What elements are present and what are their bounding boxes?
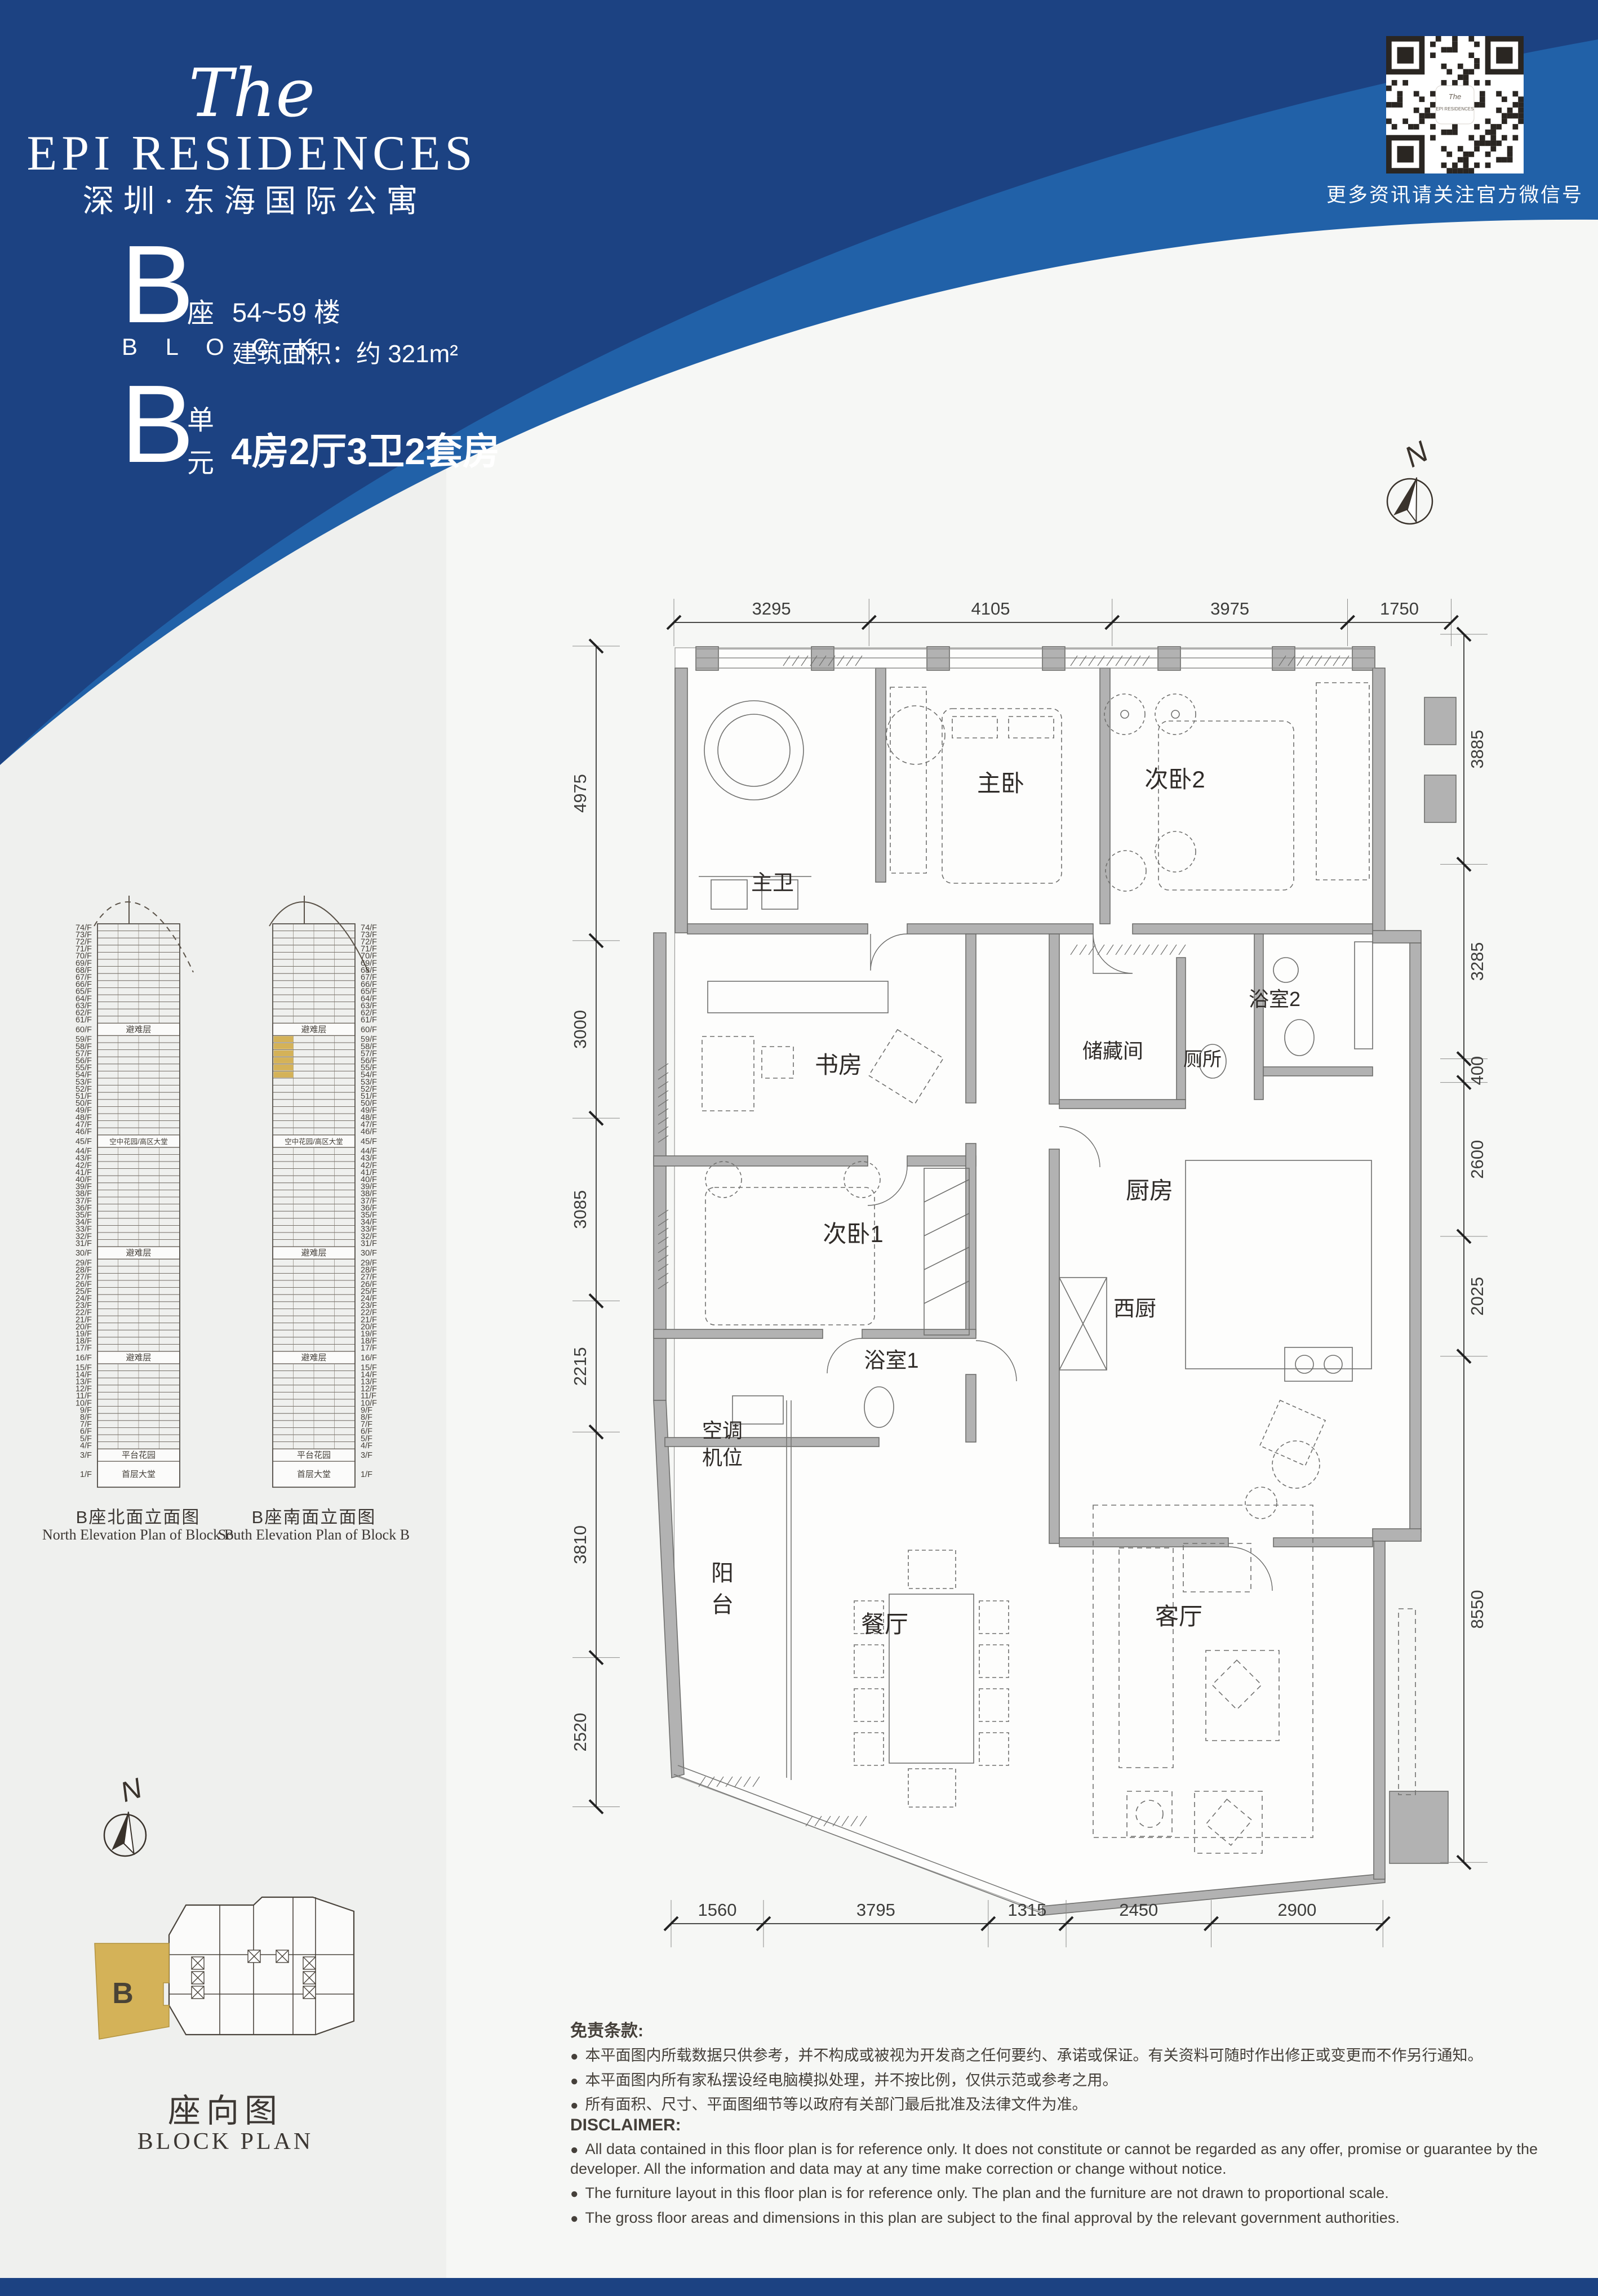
dim-label: 400 [1467,1056,1487,1085]
unit-zh-bottom: 元 [187,440,214,480]
floor-label: 60/F [76,1025,92,1034]
room-ac-1: 空调 [702,1419,743,1442]
block-plan: B [68,1876,383,2062]
dim-chain-left: 497530003085221538102520 [570,639,620,1813]
dim-label: 3795 [856,1900,895,1920]
floor-label: 4/F [80,1441,92,1450]
logo-subtitle: 深圳·东海国际公寓 [83,176,427,221]
disclaimer-en-item: ●All data contained in this floor plan i… [570,2139,1590,2178]
disclaimer-zh-title: 免责条款: [570,2017,1590,2041]
floor-label: 45/F [76,1137,92,1146]
room-toilet: 厕所 [1183,1049,1222,1070]
elevation-band-label: 平台花园 [122,1450,156,1460]
floor-label: 45/F [361,1137,377,1146]
highlight-unit-floor [274,1071,294,1078]
unit-description: 4房2厅3卫2套房 [231,421,500,475]
floor-label: 1/F [80,1470,92,1479]
disclaimer-zh-item: ●所有面积、尺寸、平面图细节等以政府有关部门最后批准及法律文件为准。 [570,2095,1590,2115]
roof-arc [94,902,193,972]
compass-blockplan-icon: N [85,1774,192,1876]
disclaimer-en-title: DISCLAIMER: [570,2116,1590,2135]
dim-label: 2900 [1277,1900,1316,1920]
dim-label: 1315 [1007,1900,1046,1920]
floor-label: 30/F [76,1249,92,1258]
floor-label: 3/F [80,1451,92,1460]
highlight-unit-floor [274,1036,294,1042]
elevation-band-label: 避难层 [301,1353,326,1363]
room-master-bed: 主卧 [977,770,1024,797]
highlight-unit-floor [274,1057,294,1064]
block-letter-zh: 座 [187,291,214,330]
floor-label: 30/F [361,1249,377,1258]
floor-label: 1/F [361,1470,372,1479]
room-master-bath: 主卫 [751,871,794,895]
dim-label: 3295 [752,599,791,619]
disclaimer-en-item: ●The furniture layout in this floor plan… [570,2183,1590,2203]
floor-label: 46/F [361,1128,377,1137]
floor-label: 17/F [76,1344,92,1353]
logo-title: EPI RESIDENCES [27,125,477,182]
elevation-band-label: 避难层 [301,1025,326,1034]
elevation-band-label: 首层大堂 [122,1470,156,1479]
logo-script: The [189,54,316,132]
room-storage: 储藏间 [1082,1039,1143,1062]
room-balcony-2: 台 [711,1592,734,1617]
floor-label: 61/F [361,1016,377,1025]
room-balcony-1: 阳 [711,1561,734,1586]
room-kitchen: 厨房 [1126,1177,1173,1204]
unit-letter: B [121,382,194,466]
dim-label: 1750 [1380,599,1419,619]
dim-label: 3000 [570,1010,590,1049]
block-floors: 54~59 楼 [232,291,340,330]
blockplan-subtitle: BLOCK PLAN [137,2128,314,2155]
floor-label: 3/F [361,1451,372,1460]
elevation-band-label: 避难层 [126,1353,151,1363]
room-study: 书房 [815,1052,862,1078]
dim-label: 2450 [1119,1900,1158,1920]
room-bed1: 次卧1 [823,1221,883,1247]
floor-label: 17/F [361,1344,377,1353]
disclaimer-zh-item: ●本平面图内所有家私摆设经电脑模拟处理，并不按比例，仅供示范或参考之用。 [570,2071,1590,2090]
north-elevation-subtitle: North Elevation Plan of Block B [42,1527,234,1543]
block-letter: B [121,242,194,327]
highlight-unit-floor [274,1043,294,1049]
south-elevation-title: B座南面立面图 [252,1503,376,1528]
south-elevation-subtitle: South Elevation Plan of Block B [218,1527,410,1543]
room-west-kitchen: 西厨 [1113,1297,1156,1321]
elevation-band-label: 空中花园/高区大堂 [109,1137,167,1146]
dim-label: 3975 [1210,599,1249,619]
plan-envelope [674,648,1421,1912]
dim-label: 3810 [570,1525,590,1564]
floor-label: 31/F [361,1239,377,1248]
dim-chain-top: 3295410539751750 [667,599,1458,646]
floor-label: 16/F [361,1354,377,1363]
disclaimer-zh-item: ●本平面图内所载数据只供参考，并不构成或被视为开发商之任何要约、承诺或保证。有关… [570,2046,1590,2066]
dim-label: 3085 [570,1190,590,1229]
dim-label: 2600 [1467,1140,1487,1179]
south-elevation: 74/F73/F72/F71/F70/F69/F68/F67/F66/F65/F… [269,896,377,1487]
disclaimer-en-item: ●The gross floor areas and dimensions in… [570,2208,1590,2228]
dim-label: 2520 [570,1713,590,1752]
dim-label: 4975 [570,774,590,813]
elevation-band-label: 首层大堂 [297,1470,331,1479]
room-living: 客厅 [1155,1603,1202,1630]
dim-label: 2025 [1467,1277,1487,1316]
room-ac-2: 机位 [702,1446,743,1469]
room-dining: 餐厅 [861,1611,908,1638]
dim-label: 2215 [570,1347,590,1386]
elevation-band-label: 空中花园/高区大堂 [285,1137,343,1146]
disclaimer-en: DISCLAIMER: ●All data contained in this … [570,2116,1590,2233]
qr-code: TheEPI RESIDENCES [1386,36,1524,173]
qr-caption: 更多资讯请关注官方微信号 [1326,179,1583,208]
room-bath2: 浴室2 [1249,987,1300,1011]
elevation-band-label: 避难层 [126,1025,151,1034]
floor-label: 60/F [361,1025,377,1034]
blockplan-title: 座向图 [168,2084,283,2132]
dim-label: 3285 [1467,942,1487,981]
brochure-page: The EPI RESIDENCES 深圳·东海国际公寓 B 座 B L O C… [0,0,1598,2296]
compass-north-icon: N [1358,438,1471,545]
compass-n-label: N [1400,438,1434,474]
floor-label: 31/F [76,1239,92,1248]
highlight-unit-floor [274,1051,294,1057]
room-bed2: 次卧2 [1144,766,1205,793]
dim-label: 8550 [1467,1590,1487,1629]
floor-label: 61/F [76,1016,92,1025]
qr-logo-script: The [1449,92,1461,101]
unit-zh-top: 单 [187,398,214,437]
floor-label: 4/F [361,1441,372,1450]
blockplan-unit-b-label: B [112,1977,134,2010]
elevation-diagrams: 74/F73/F72/F71/F70/F69/F68/F67/F66/F65/F… [56,867,451,1504]
elevation-band-label: 避难层 [126,1248,151,1258]
compass-n-label: N [117,1774,146,1808]
block-area: 建筑面积：约 321m² [232,333,458,370]
bottom-bar [0,2278,1598,2296]
elevation-band-label: 平台花园 [297,1450,331,1460]
floorplan: 主卧 次卧2 主卫 书房 储藏间 厕所 浴室2 厨房 西厨 次卧1 浴室1 空调… [563,575,1544,1966]
highlight-unit-floor [274,1065,294,1071]
floor-label: 16/F [76,1354,92,1363]
north-elevation: 74/F73/F72/F71/F70/F69/F68/F67/F66/F65/F… [76,896,193,1487]
floor-label: 46/F [76,1128,92,1137]
disclaimer-zh: 免责条款: ●本平面图内所载数据只供参考，并不构成或被视为开发商之任何要约、承诺… [570,2017,1590,2120]
qr-logo-name: EPI RESIDENCES [1436,106,1473,112]
dim-label: 1560 [698,1900,736,1920]
north-elevation-title: B座北面立面图 [76,1503,201,1528]
dim-label: 4105 [971,599,1010,619]
dim-label: 3885 [1467,730,1487,769]
elevation-band-label: 避难层 [301,1248,326,1258]
roof-arc [269,902,369,972]
room-bath1: 浴室1 [864,1349,918,1373]
dim-chain-bottom: 15603795131524502900 [664,1900,1390,1947]
